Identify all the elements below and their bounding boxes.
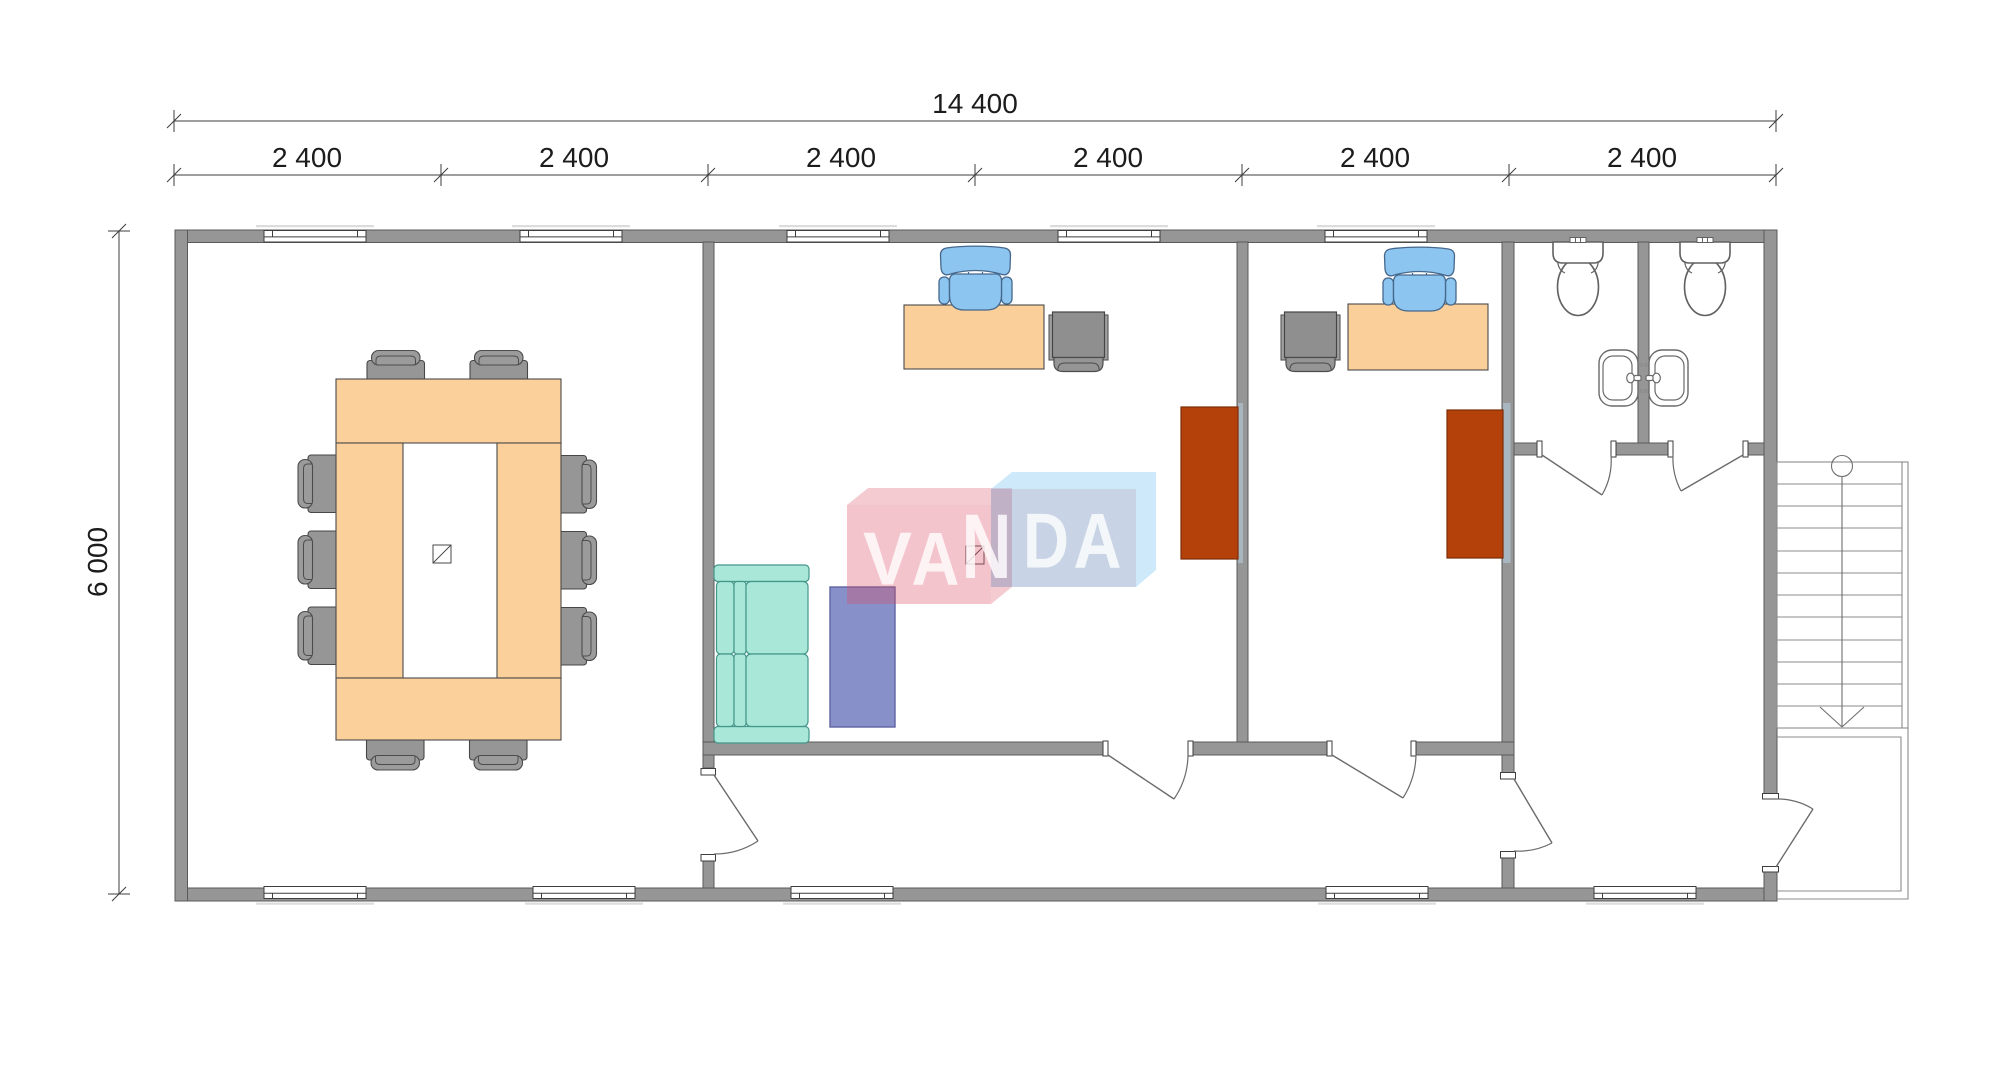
svg-text:14 400: 14 400 bbox=[932, 88, 1018, 119]
svg-text:D: D bbox=[1023, 497, 1069, 585]
svg-text:2 400: 2 400 bbox=[1073, 142, 1143, 173]
svg-text:2 400: 2 400 bbox=[806, 142, 876, 173]
svg-text:2 400: 2 400 bbox=[272, 142, 342, 173]
svg-text:V: V bbox=[863, 517, 912, 601]
svg-text:2 400: 2 400 bbox=[1340, 142, 1410, 173]
svg-text:N: N bbox=[962, 496, 1012, 598]
svg-text:2 400: 2 400 bbox=[539, 142, 609, 173]
svg-text:A: A bbox=[912, 517, 960, 601]
svg-text:2 400: 2 400 bbox=[1607, 142, 1677, 173]
svg-text:6 000: 6 000 bbox=[82, 527, 113, 597]
svg-text:A: A bbox=[1074, 497, 1122, 585]
